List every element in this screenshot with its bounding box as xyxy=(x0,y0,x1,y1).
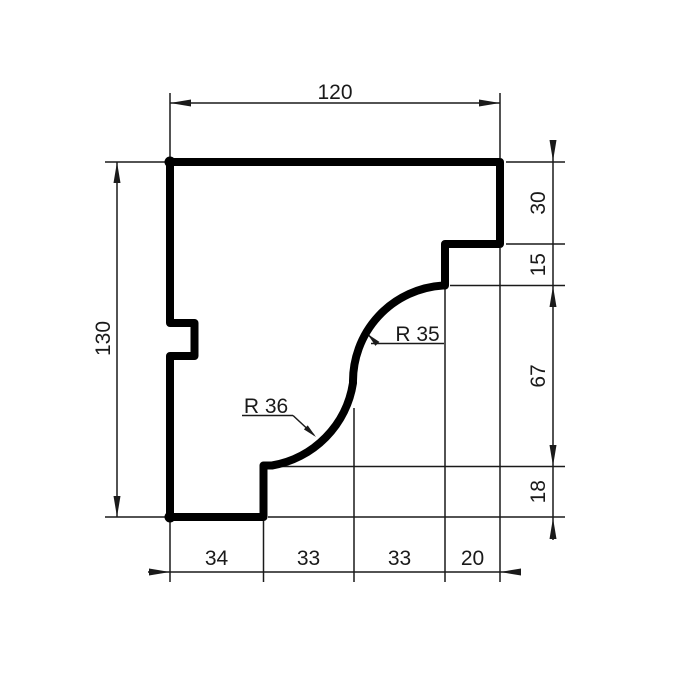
profile-end-dot-bottom xyxy=(165,512,176,523)
dim-text-bottom-33a: 33 xyxy=(297,547,320,570)
dim-text-right-18: 18 xyxy=(527,480,550,503)
arrow-left-down xyxy=(114,496,121,517)
profile-outline xyxy=(170,162,500,517)
arrow-right-18-bottom xyxy=(550,518,557,539)
dim-text-right-67: 67 xyxy=(527,364,550,387)
arrow-top-right xyxy=(479,100,500,107)
dim-text-top-width: 120 xyxy=(317,81,352,104)
dim-text-bottom-34: 34 xyxy=(205,547,229,570)
profile-end-dot-top xyxy=(165,157,176,168)
dim-text-left-height: 130 xyxy=(92,321,115,356)
arrow-right-67-top xyxy=(550,286,557,307)
technical-drawing-canvas: 120 130 30 15 67 18 34 33 33 20 R 35 R 3… xyxy=(0,0,686,686)
arrow-left-up xyxy=(114,162,121,183)
radius-label-r36: R 36 xyxy=(244,395,288,418)
arrow-right-67-bottom xyxy=(550,445,557,466)
dim-text-right-30: 30 xyxy=(527,191,550,214)
cornice-profile-drawing: 120 130 30 15 67 18 34 33 33 20 R 35 R 3… xyxy=(0,0,686,686)
arrow-bottom-left xyxy=(149,569,170,576)
dim-text-bottom-20: 20 xyxy=(461,547,484,570)
radius-label-r35: R 35 xyxy=(395,323,439,346)
dim-text-right-15: 15 xyxy=(527,253,550,276)
arrowheads xyxy=(114,100,557,576)
arrow-top-left xyxy=(170,100,191,107)
arrow-bottom-right xyxy=(500,569,521,576)
arrow-right-30-top xyxy=(550,140,557,161)
dim-text-bottom-33b: 33 xyxy=(388,547,411,570)
